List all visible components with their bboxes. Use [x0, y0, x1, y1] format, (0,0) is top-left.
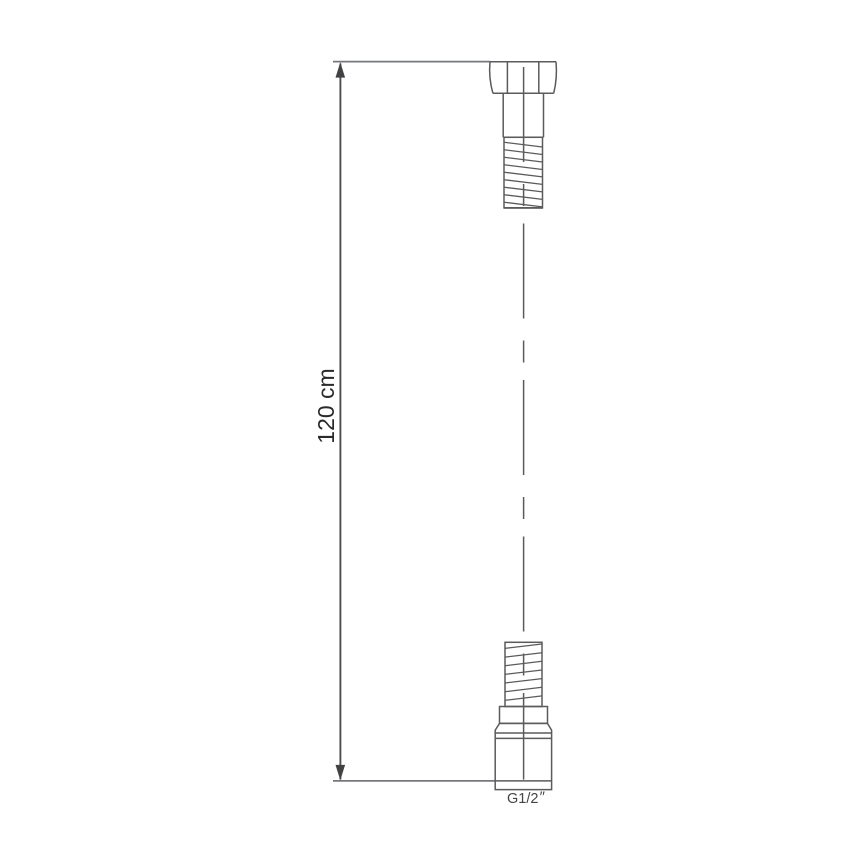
svg-text:120 cm: 120 cm: [313, 368, 339, 443]
svg-text:G1/2: G1/2: [507, 791, 538, 807]
svg-text:″: ″: [540, 788, 546, 805]
